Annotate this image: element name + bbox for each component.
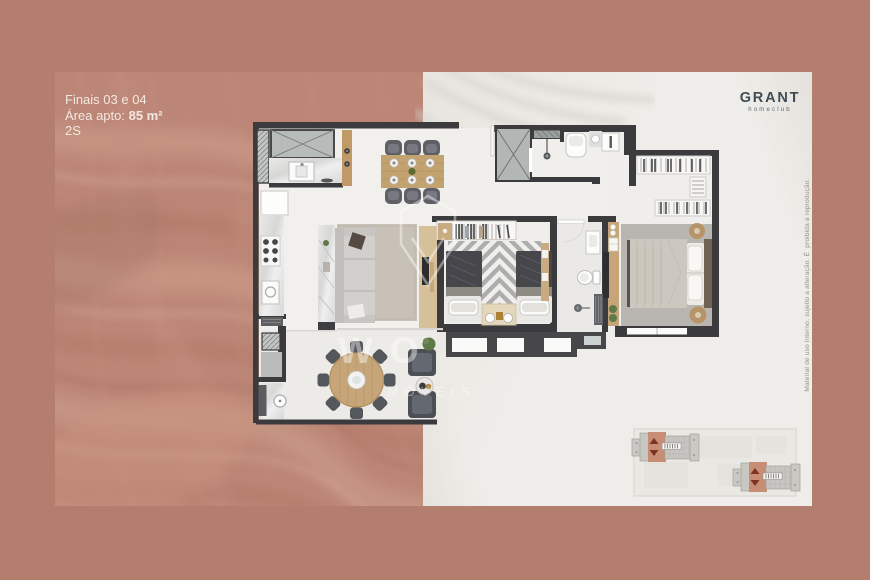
svg-text:MÓVEIS: MÓVEIS [388, 384, 476, 399]
svg-text:WO: WO [338, 330, 436, 371]
